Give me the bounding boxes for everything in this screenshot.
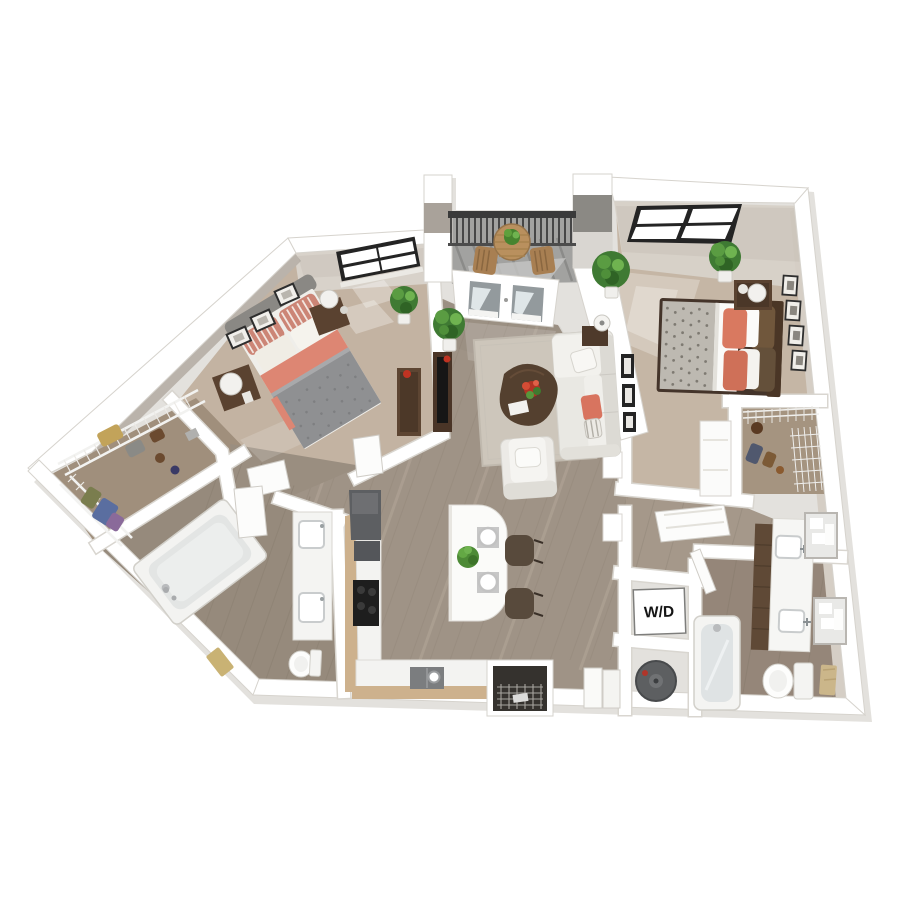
svg-text:W/D: W/D — [644, 603, 675, 621]
